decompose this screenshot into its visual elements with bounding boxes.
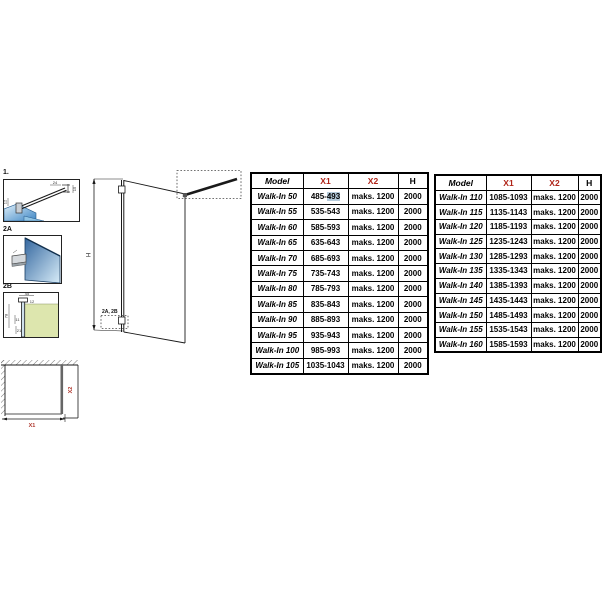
elevation-drawing: H 2A, 2B [85,165,247,363]
table-cell: 2000 [398,312,428,327]
table-cell: 2000 [578,220,601,235]
selected-text: 493 [327,192,340,201]
table-cell: maks. 1200 [531,264,578,279]
table-cell: 1285-1293 [486,249,531,264]
table-cell: 1135-1143 [486,205,531,220]
table-cell: 1235-1243 [486,234,531,249]
table-cell: 885-893 [303,312,348,327]
table-cell: 1585-1593 [486,337,531,352]
support-bar-line-1 [19,188,65,207]
width-dimension-label: X1 [29,423,36,429]
table-row: Walk-In 1451435-1443maks. 12002000 [435,293,601,308]
table-cell: Walk-In 110 [435,190,486,205]
table-cell: 2000 [398,343,428,358]
arrow-down [92,325,95,331]
column-header-h: H [578,175,601,190]
table-row: Walk-In 1501485-1493maks. 12002000 [435,308,601,323]
table-cell: Walk-In 125 [435,234,486,249]
spec-table-1: Model X1 X2 H Walk-In 50485-493maks. 120… [250,172,429,375]
table-row: Walk-In 1301285-1293maks. 12002000 [435,249,601,264]
table-row: Walk-In 60585-593maks. 12002000 [251,220,428,235]
table-cell: 2000 [578,308,601,323]
table-cell: Walk-In 80 [251,281,303,296]
table-cell: Walk-In 95 [251,327,303,342]
table-cell: 2000 [578,337,601,352]
table-cell: 2000 [578,249,601,264]
table-cell: Walk-In 155 [435,322,486,337]
table-cell: Walk-In 140 [435,278,486,293]
table-row: Walk-In 95935-943maks. 12002000 [251,327,428,342]
table-row: Walk-In 75735-743maks. 12002000 [251,266,428,281]
table-cell: Walk-In 75 [251,266,303,281]
table-row: Walk-In 100985-993maks. 12002000 [251,343,428,358]
table-cell: maks. 1200 [348,220,398,235]
table-cell: 985-993 [303,343,348,358]
table-cell: 2000 [578,278,601,293]
table-1-body: Walk-In 50485-493maks. 12002000Walk-In 5… [251,189,428,374]
table-cell: 1035-1043 [303,358,348,374]
table-cell: 2000 [578,264,601,279]
table-cell: 585-593 [303,220,348,235]
table-cell: 2000 [398,204,428,219]
table-row: Walk-In 1051035-1043maks. 12002000 [251,358,428,374]
spec-sheet-page: 1. 24 15 12 2A [0,0,606,607]
glass-top-edge [124,181,185,195]
detail-2b-drawing: 45 12 78 11 21 [3,292,59,338]
table-cell: maks. 1200 [348,297,398,312]
detail-2a-label: 2A [3,226,12,233]
table-cell: maks. 1200 [348,327,398,342]
table-cell: Walk-In 50 [251,189,303,204]
wall-hatch-left [1,360,5,416]
table-cell: Walk-In 135 [435,264,486,279]
table-cell: 835-843 [303,297,348,312]
table-cell: maks. 1200 [531,308,578,323]
table-cell: 935-943 [303,327,348,342]
table-row: Walk-In 90885-893maks. 12002000 [251,312,428,327]
table-cell: maks. 1200 [348,312,398,327]
table-cell: 1435-1443 [486,293,531,308]
glass-clamp [16,203,22,213]
table-cell: maks. 1200 [531,205,578,220]
table-row: Walk-In 65635-643maks. 12002000 [251,235,428,250]
plan-view-drawing: X2 X1 [1,357,107,431]
table-cell: 2000 [398,189,428,204]
glass-section [22,300,25,337]
table-header-row: Model X1 X2 H [251,173,428,189]
table-row: Walk-In 80785-793maks. 12002000 [251,281,428,296]
wall-profile [19,298,28,302]
table-cell: maks. 1200 [531,190,578,205]
column-header-x2: X2 [348,173,398,189]
table-row: Walk-In 1601585-1593maks. 12002000 [435,337,601,352]
arrow-up [92,179,95,185]
glass-panel-plan [61,365,64,414]
table-cell: Walk-In 70 [251,250,303,265]
table-cell: 1335-1343 [486,264,531,279]
wall-bracket-top [119,186,126,193]
table-cell: maks. 1200 [531,278,578,293]
table-cell: maks. 1200 [531,220,578,235]
dimension-label: 78 [4,313,9,318]
table-cell: Walk-In 120 [435,220,486,235]
wall-bracket-bottom [119,317,126,324]
table-cell: 2000 [398,220,428,235]
table-cell: 2000 [398,281,428,296]
table-row: Walk-In 50485-493maks. 12002000 [251,189,428,204]
spec-table-2: Model X1 X2 H Walk-In 1101085-1093maks. … [434,174,602,353]
dimension-label: 15 [72,186,77,191]
table-cell: 2000 [578,322,601,337]
table-cell: 2000 [398,250,428,265]
table-cell: Walk-In 105 [251,358,303,374]
table-cell: maks. 1200 [348,358,398,374]
dimension-label: 11 [15,317,20,322]
table-cell: maks. 1200 [531,293,578,308]
table-cell: maks. 1200 [348,235,398,250]
table-cell: 1085-1093 [486,190,531,205]
support-bar [185,179,237,195]
detail-2b-label: 2B [3,283,12,290]
table-cell: 2000 [578,190,601,205]
table-cell: Walk-In 90 [251,312,303,327]
table-row: Walk-In 85835-843maks. 12002000 [251,297,428,312]
dimension-label: 12 [4,199,8,204]
table-cell: maks. 1200 [348,189,398,204]
table-cell: 2000 [398,297,428,312]
table-cell: Walk-In 65 [251,235,303,250]
table-cell: maks. 1200 [348,250,398,265]
wall-hatch-top [1,360,78,365]
table-cell: 1485-1493 [486,308,531,323]
extension-line-bottom [94,330,123,331]
table-cell: 2000 [398,358,428,374]
table-cell: Walk-In 60 [251,220,303,235]
depth-dimension-label: X2 [68,387,74,394]
detail-1-label: 1. [3,169,9,176]
dimension-label: 24 [53,180,58,185]
table-cell: maks. 1200 [531,234,578,249]
table-row: Walk-In 1201185-1193maks. 12002000 [435,220,601,235]
column-header-h: H [398,173,428,189]
table-cell: maks. 1200 [348,204,398,219]
table-row: Walk-In 1351335-1343maks. 12002000 [435,264,601,279]
dimension-label: 45 [25,293,30,296]
height-label: H [87,253,93,257]
table-1-header: Model X1 X2 H [251,173,428,189]
table-cell: maks. 1200 [348,266,398,281]
table-row: Walk-In 1251235-1243maks. 12002000 [435,234,601,249]
table-row: Walk-In 1551535-1543maks. 12002000 [435,322,601,337]
table-row: Walk-In 1101085-1093maks. 12002000 [435,190,601,205]
table-cell: 635-643 [303,235,348,250]
dimension-label: 12 [30,299,35,304]
table-cell: 2000 [578,293,601,308]
table-cell: 685-693 [303,250,348,265]
column-header-x1: X1 [303,173,348,189]
table-cell: Walk-In 55 [251,204,303,219]
table-row: Walk-In 1151135-1143maks. 12002000 [435,205,601,220]
bracket-tick [13,250,17,253]
column-header-model: Model [251,173,303,189]
table-cell: maks. 1200 [531,249,578,264]
column-header-model: Model [435,175,486,190]
table-cell: maks. 1200 [531,322,578,337]
detail-1-illustration: 24 15 12 [4,180,79,221]
table-cell: Walk-In 85 [251,297,303,312]
table-cell: 2000 [578,205,601,220]
table-2-body: Walk-In 1101085-1093maks. 12002000Walk-I… [435,190,601,352]
table-cell: 535-543 [303,204,348,219]
table-cell: 2000 [398,266,428,281]
table-cell: 735-743 [303,266,348,281]
dimension-label: 21 [17,328,22,333]
table-cell: 1185-1193 [486,220,531,235]
column-header-x1: X1 [486,175,531,190]
detail-1-drawing: 24 15 12 [3,179,80,222]
table-cell: Walk-In 145 [435,293,486,308]
glass-panel [25,238,60,283]
table-2-header: Model X1 X2 H [435,175,601,190]
detail-2a-illustration [4,236,61,283]
table-cell: Walk-In 100 [251,343,303,358]
table-cell: maks. 1200 [348,343,398,358]
column-header-x2: X2 [531,175,578,190]
table-cell: 2000 [578,234,601,249]
table-cell: 2000 [398,327,428,342]
table-cell: Walk-In 160 [435,337,486,352]
support-bar-line-2 [21,190,67,209]
detail-2b-illustration: 45 12 78 11 21 [4,293,58,337]
detail-2a-drawing [3,235,62,284]
support-bar-connector [183,193,187,197]
table-cell: 1385-1393 [486,278,531,293]
arrow-left [2,418,7,421]
table-cell: 2000 [398,235,428,250]
table-cell: Walk-In 150 [435,308,486,323]
table-row: Walk-In 55535-543maks. 12002000 [251,204,428,219]
table-cell: Walk-In 115 [435,205,486,220]
table-cell: maks. 1200 [348,281,398,296]
callout-label: 2A, 2B [102,309,118,315]
wall-section [25,304,58,337]
table-cell: Walk-In 130 [435,249,486,264]
table-cell: 1535-1543 [486,322,531,337]
table-cell: 485-493 [303,189,348,204]
glass-bottom-edge [124,332,185,343]
table-cell: 785-793 [303,281,348,296]
table-header-row: Model X1 X2 H [435,175,601,190]
table-cell: maks. 1200 [531,337,578,352]
table-row: Walk-In 1401385-1393maks. 12002000 [435,278,601,293]
table-row: Walk-In 70685-693maks. 12002000 [251,250,428,265]
